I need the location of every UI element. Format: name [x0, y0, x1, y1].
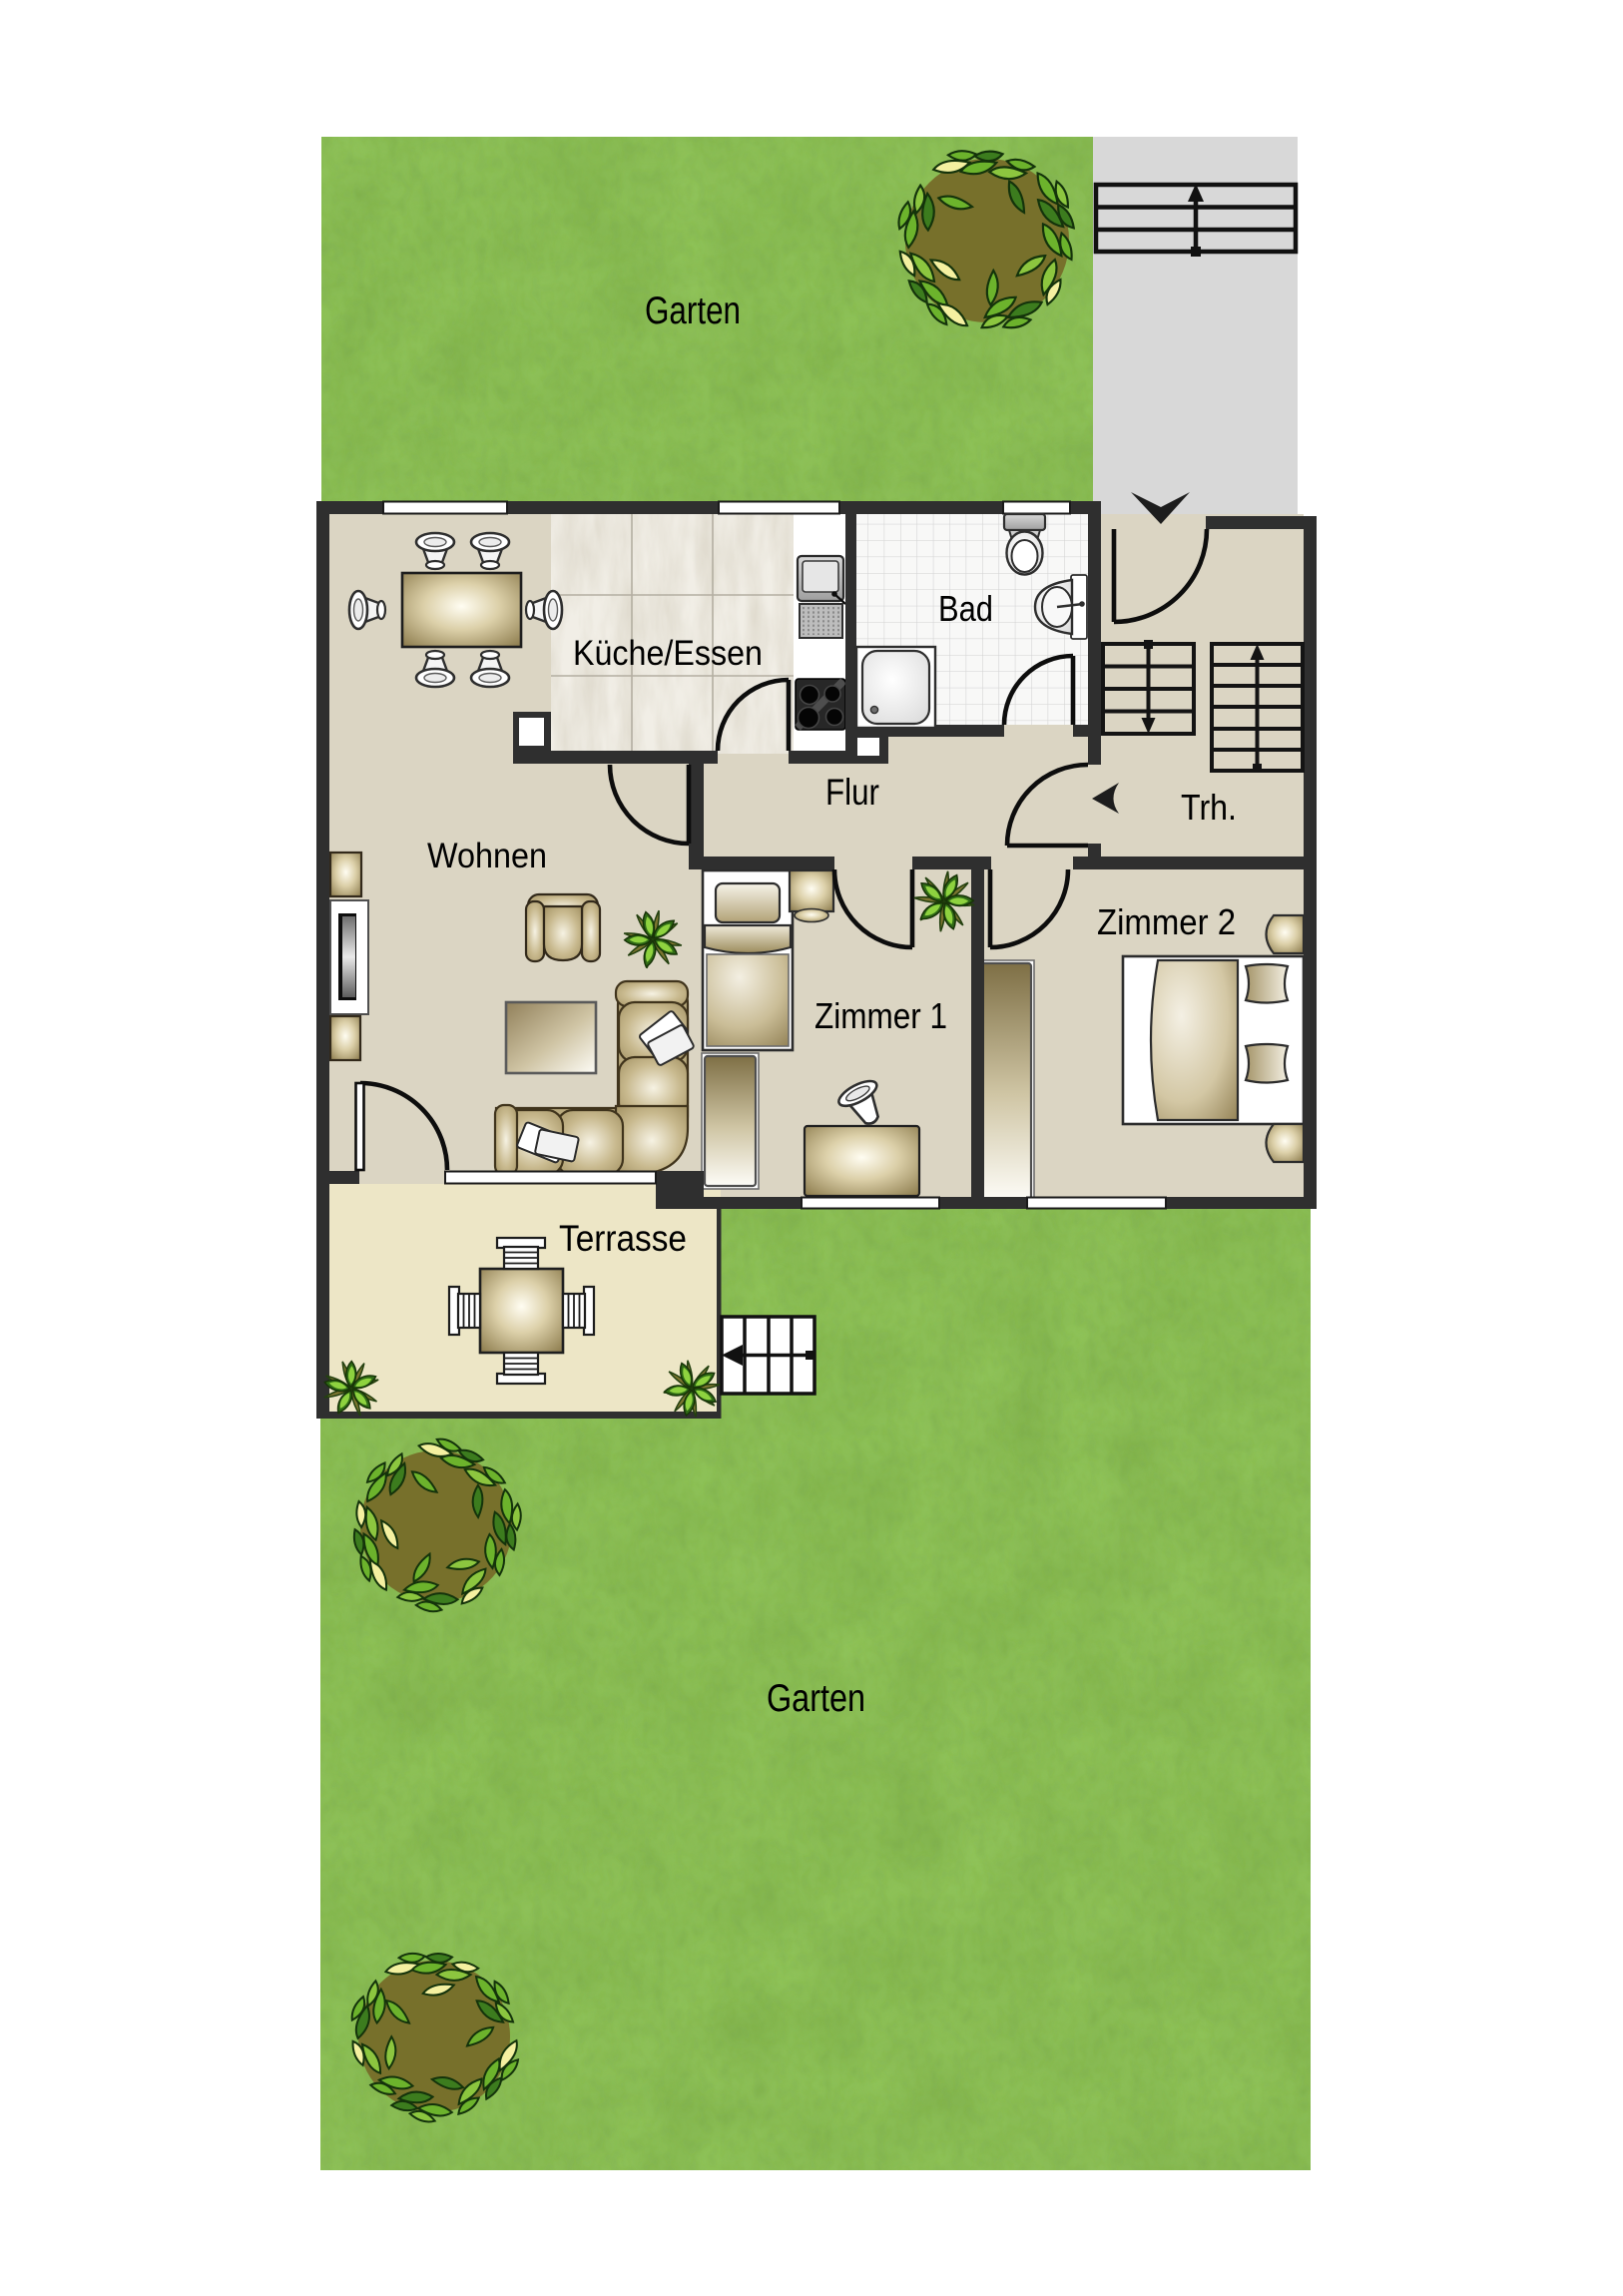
svg-text:Flur: Flur — [825, 772, 879, 813]
svg-text:Terrasse: Terrasse — [559, 1218, 687, 1259]
svg-text:Küche/Essen: Küche/Essen — [573, 634, 763, 673]
svg-text:Trh.: Trh. — [1181, 787, 1237, 828]
svg-text:Garten: Garten — [767, 1677, 865, 1720]
svg-text:Garten: Garten — [645, 289, 741, 332]
svg-text:Zimmer 1: Zimmer 1 — [814, 995, 947, 1036]
svg-text:Zimmer 2: Zimmer 2 — [1097, 901, 1236, 942]
svg-text:Wohnen: Wohnen — [427, 837, 547, 875]
svg-text:Bad: Bad — [938, 588, 993, 629]
